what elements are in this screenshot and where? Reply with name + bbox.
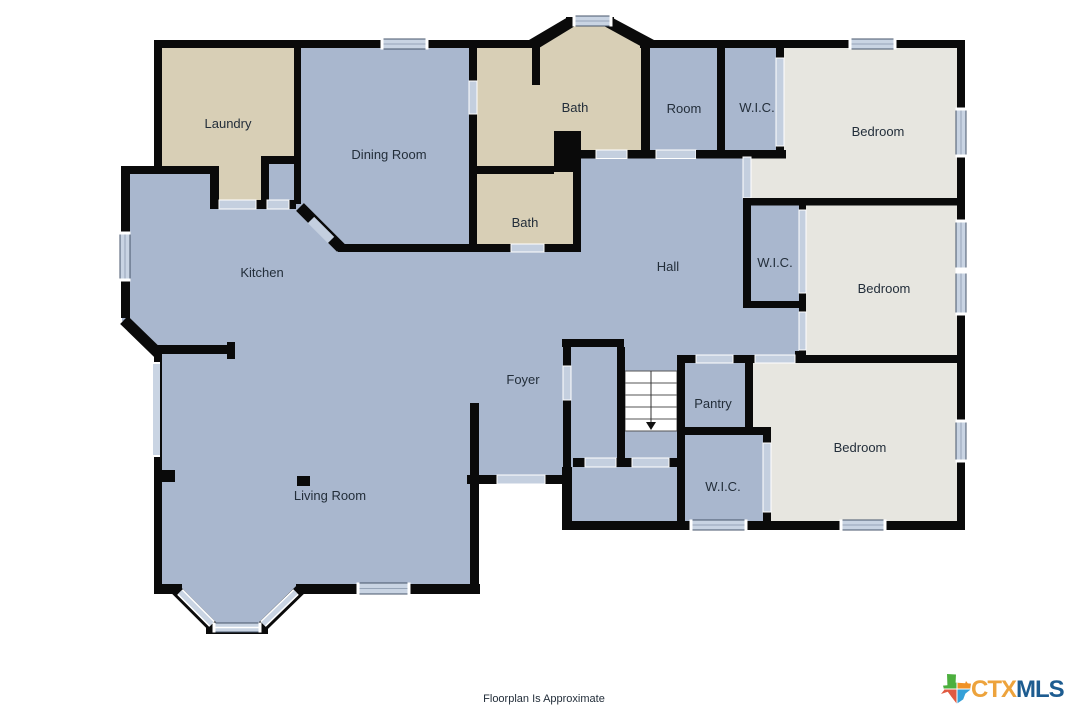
svg-text:W.I.C.: W.I.C.: [739, 100, 774, 115]
svg-text:Bedroom: Bedroom: [852, 124, 905, 139]
svg-text:W.I.C.: W.I.C.: [757, 255, 792, 270]
svg-text:Room: Room: [667, 101, 702, 116]
svg-text:Bedroom: Bedroom: [858, 281, 911, 296]
svg-text:W.I.C.: W.I.C.: [705, 479, 740, 494]
svg-text:Kitchen: Kitchen: [240, 265, 283, 280]
svg-text:Laundry: Laundry: [205, 116, 252, 131]
svg-text:Dining Room: Dining Room: [351, 147, 426, 162]
svg-text:Bedroom: Bedroom: [834, 440, 887, 455]
svg-text:Bath: Bath: [512, 215, 539, 230]
svg-text:Living Room: Living Room: [294, 488, 366, 503]
svg-text:Foyer: Foyer: [506, 372, 540, 387]
svg-text:Pantry: Pantry: [694, 396, 732, 411]
svg-text:CTXMLS: CTXMLS: [971, 676, 1065, 703]
svg-text:Hall: Hall: [657, 259, 680, 274]
svg-text:Floorplan Is Approximate: Floorplan Is Approximate: [483, 693, 605, 705]
svg-text:Bath: Bath: [562, 100, 589, 115]
